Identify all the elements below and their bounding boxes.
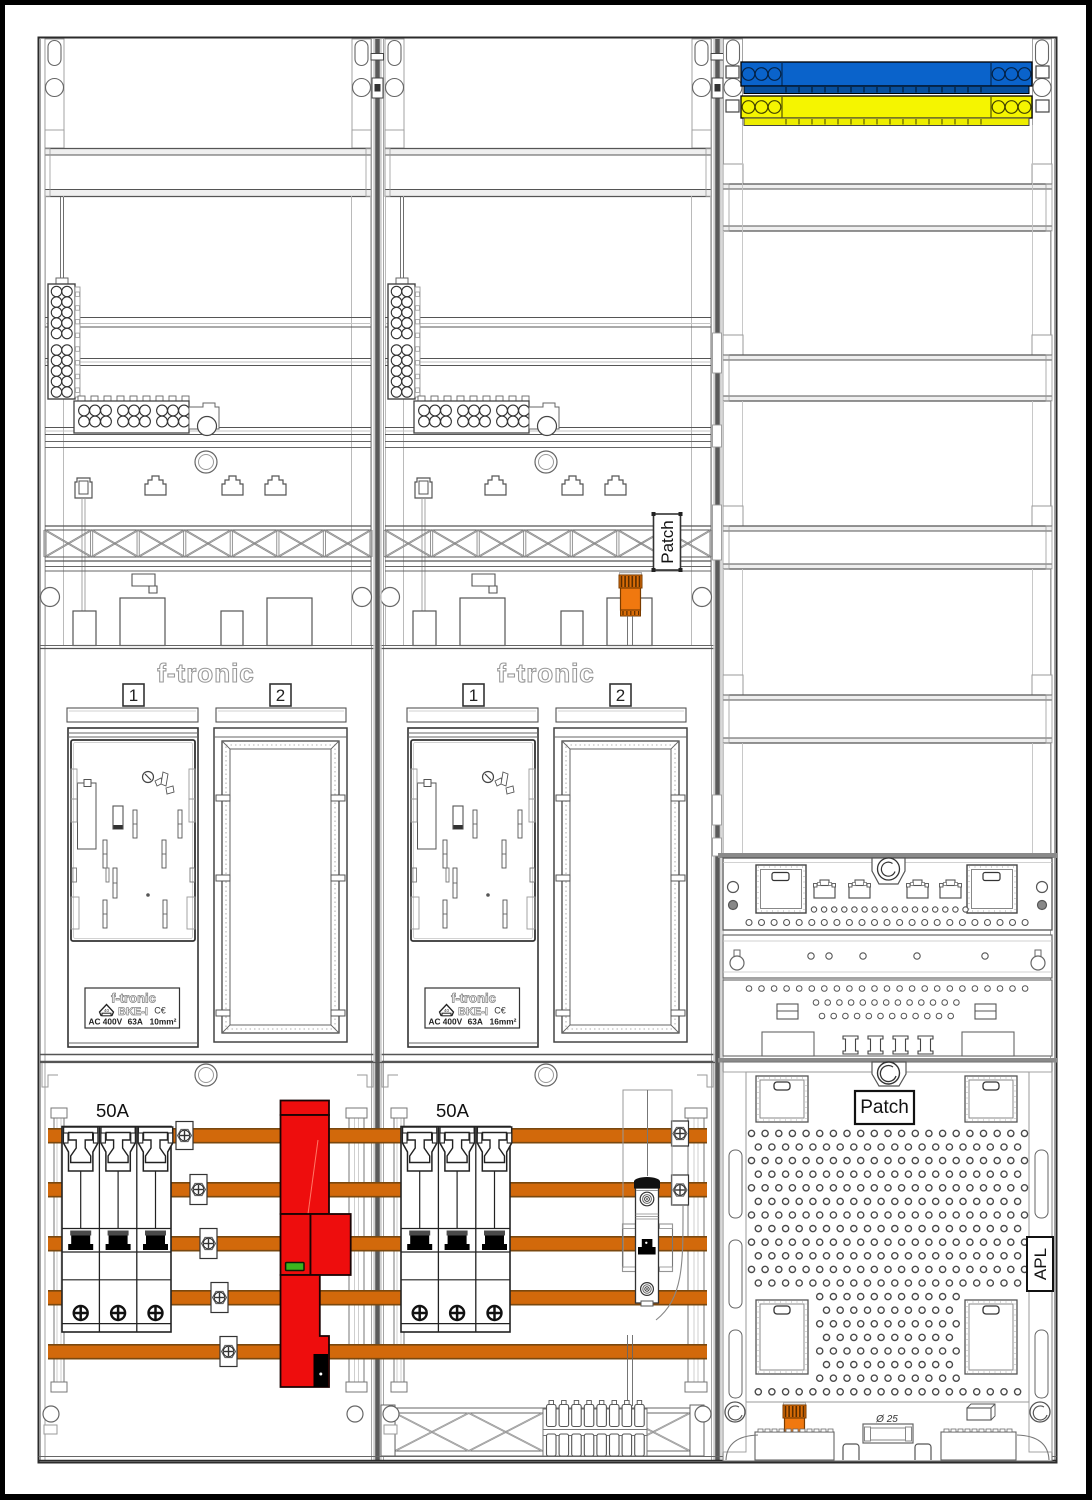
svg-text:1: 1 — [469, 686, 478, 705]
svg-text:Patch: Patch — [860, 1097, 909, 1118]
svg-text:f-tronic: f-tronic — [497, 658, 595, 688]
svg-text:10mm²: 10mm² — [150, 1016, 177, 1026]
svg-text:C€: C€ — [494, 1006, 506, 1016]
svg-text:Patch: Patch — [658, 520, 677, 563]
svg-text:AC 400V: AC 400V — [88, 1016, 122, 1026]
svg-text:f-tronic: f-tronic — [157, 658, 255, 688]
svg-text:63A: 63A — [128, 1016, 143, 1026]
svg-text:f-tronic: f-tronic — [451, 991, 496, 1006]
svg-text:C€: C€ — [154, 1006, 166, 1016]
svg-text:40: 40 — [444, 1008, 450, 1013]
svg-text:APL: APL — [1031, 1248, 1050, 1280]
svg-text:2: 2 — [276, 686, 285, 705]
svg-text:63A: 63A — [468, 1016, 483, 1026]
svg-text:1: 1 — [129, 686, 138, 705]
svg-text:AC 400V: AC 400V — [428, 1016, 462, 1026]
svg-text:16mm²: 16mm² — [490, 1016, 517, 1026]
svg-text:2: 2 — [616, 686, 625, 705]
svg-text:40: 40 — [104, 1008, 110, 1013]
svg-text:50A: 50A — [96, 1100, 130, 1121]
svg-text:f-tronic: f-tronic — [111, 991, 156, 1006]
svg-text:50A: 50A — [436, 1100, 470, 1121]
svg-text:Ø 25: Ø 25 — [875, 1414, 898, 1425]
